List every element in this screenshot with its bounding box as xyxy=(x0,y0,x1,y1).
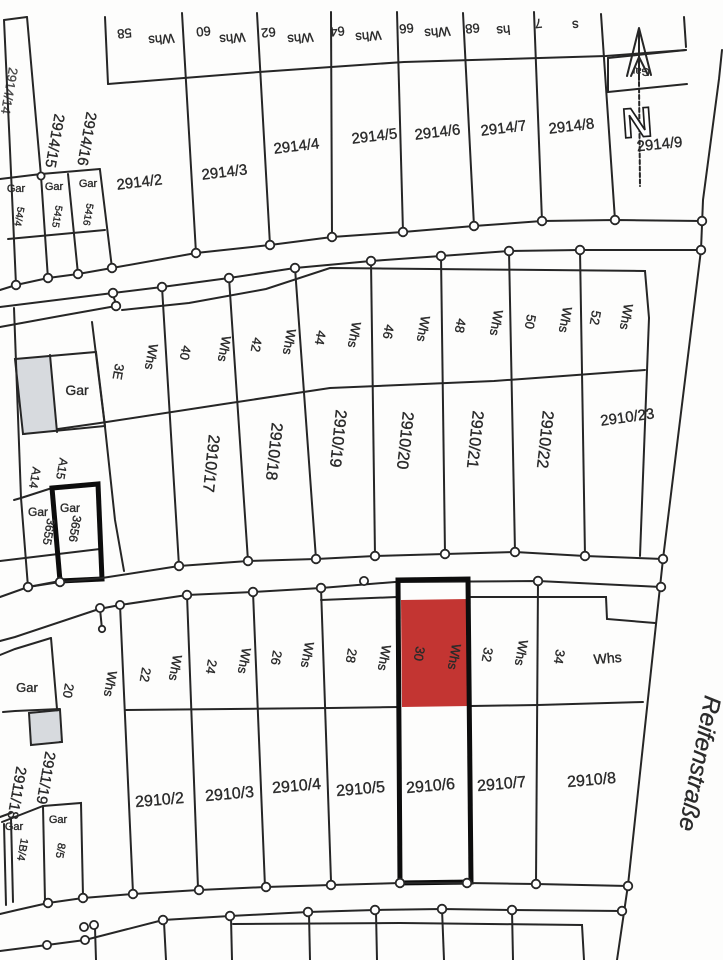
svg-text:Gar: Gar xyxy=(7,183,26,195)
svg-text:46: 46 xyxy=(380,323,397,340)
svg-text:Whs: Whs xyxy=(593,649,622,667)
svg-text:52: 52 xyxy=(587,309,604,326)
svg-text:50: 50 xyxy=(522,313,539,330)
svg-text:Gar: Gar xyxy=(60,501,80,515)
svg-text:44: 44 xyxy=(312,329,329,346)
svg-text:42: 42 xyxy=(248,336,265,353)
svg-text:7: 7 xyxy=(534,16,543,32)
svg-text:Whs: Whs xyxy=(147,31,175,49)
svg-text:60: 60 xyxy=(195,23,211,39)
svg-text:Gar: Gar xyxy=(79,178,98,190)
svg-text:Gar: Gar xyxy=(49,814,68,826)
svg-text:58: 58 xyxy=(116,25,132,41)
svg-text:62: 62 xyxy=(260,24,276,40)
svg-text:68: 68 xyxy=(464,20,480,36)
svg-text:20: 20 xyxy=(60,682,77,699)
svg-text:28: 28 xyxy=(343,647,360,664)
svg-text:24: 24 xyxy=(203,658,220,675)
svg-text:64: 64 xyxy=(329,23,345,39)
svg-text:34: 34 xyxy=(551,648,568,665)
svg-text:48: 48 xyxy=(452,317,469,334)
svg-text:Whs: Whs xyxy=(354,28,382,46)
svg-text:Whs: Whs xyxy=(286,30,314,48)
svg-text:Gar: Gar xyxy=(28,505,48,519)
svg-text:32: 32 xyxy=(479,646,496,663)
svg-text:Gar: Gar xyxy=(65,382,89,398)
svg-text:Gar: Gar xyxy=(631,65,650,78)
svg-text:Whs: Whs xyxy=(423,24,451,42)
svg-text:40: 40 xyxy=(177,344,194,361)
svg-text:Gar: Gar xyxy=(45,181,64,193)
svg-text:Gar: Gar xyxy=(16,680,38,695)
svg-text:22: 22 xyxy=(137,666,154,683)
svg-text:3E: 3E xyxy=(110,363,128,382)
svg-text:Whs: Whs xyxy=(218,30,246,48)
svg-text:Gar: Gar xyxy=(5,821,24,833)
svg-text:30: 30 xyxy=(411,645,428,662)
svg-text:66: 66 xyxy=(398,20,414,36)
svg-text:N: N xyxy=(620,98,654,147)
svg-text:26: 26 xyxy=(268,649,285,666)
svg-text:hs: hs xyxy=(495,22,511,38)
